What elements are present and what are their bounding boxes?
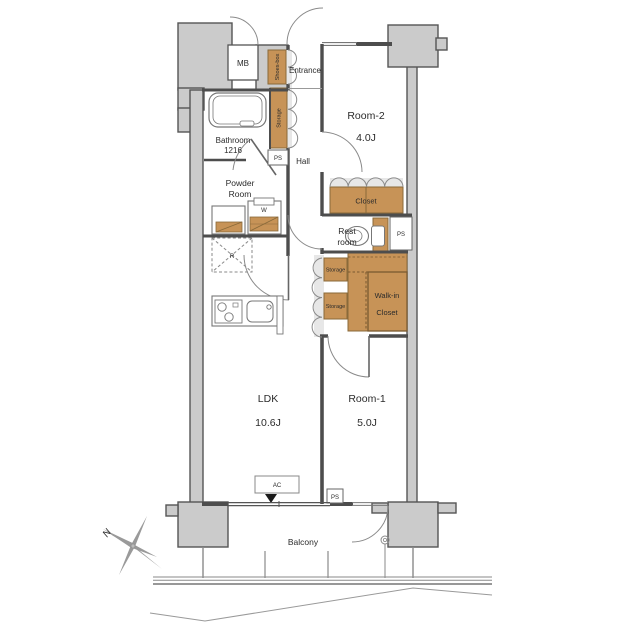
north-label: N (101, 526, 115, 539)
top-right-column (388, 25, 438, 67)
bathroom-size: 1216 (224, 146, 242, 155)
ps-label-room1: PS (331, 495, 339, 501)
rest-room-label-1: Rest (338, 226, 356, 236)
common-area-block (178, 23, 232, 90)
rest-room-label-2: room (337, 237, 356, 247)
room2-label: Room-2 (347, 110, 385, 122)
balcony-label: Balcony (288, 537, 319, 547)
entry-marker-triangle (265, 494, 277, 503)
powder-room-label-2: Room (229, 189, 252, 199)
entrance-door-arc (287, 8, 323, 44)
ldk-label: LDK (258, 393, 278, 405)
walk-in-closet-label-1: Walk-in (375, 291, 400, 300)
room1-size: 5.0J (357, 417, 377, 429)
vanity (212, 206, 245, 234)
common-area-step2 (178, 108, 191, 132)
ac-label: AC (273, 483, 282, 489)
washer-label: W (261, 208, 267, 214)
floor-plan-page: Room-2 4.0J Room-1 5.0J LDK 10.6J Entran… (0, 0, 617, 640)
storage-2-label: Storage (326, 304, 346, 310)
restroom-door-arc (288, 215, 322, 249)
ldk-door-arc (244, 255, 289, 300)
bathroom-label: Bathroom (216, 136, 251, 145)
top-right-column-notch (436, 38, 447, 50)
ldk-size: 10.6J (255, 417, 281, 429)
bottom-left-column (178, 502, 228, 547)
room1-door-arc (328, 336, 369, 377)
ps-label-hall: PS (274, 156, 282, 162)
right-wall-band (407, 55, 417, 504)
washer-pan (248, 198, 281, 234)
ldk-sliding-window (228, 501, 330, 507)
bottom-right-column (388, 502, 438, 547)
stove-burner-1 (218, 303, 226, 311)
kitchen-faucet (267, 305, 271, 309)
storage-1-label: Storage (326, 268, 346, 274)
bottom-left-column-wing (166, 505, 178, 516)
balcony-elements (150, 536, 492, 621)
bathtub (209, 93, 266, 127)
entrance-label: Entrance (289, 66, 322, 75)
closet-label: Closet (355, 197, 377, 206)
kitchen-counter (212, 296, 283, 334)
hall-storage-label: Storage (277, 108, 283, 128)
room1-label: Room-1 (348, 393, 386, 405)
mb-label: MB (237, 59, 249, 68)
bottom-right-column-wing-left (372, 503, 388, 513)
site-boundary-line (150, 588, 492, 621)
room2-size: 4.0J (356, 132, 376, 144)
ps-label-restroom: PS (397, 232, 405, 238)
powder-room-label-1: Powder (226, 178, 255, 188)
kitchen-sink (247, 301, 273, 322)
stove-burner-2 (225, 313, 233, 321)
left-wall-band (190, 90, 203, 504)
shoes-box-label: Shoes-box (275, 53, 281, 80)
walk-in-closet-label-2: Closet (376, 308, 398, 317)
compass (103, 516, 162, 575)
bottom-right-column-wing-right (438, 503, 456, 513)
floor-plan-drawing: Room-2 4.0J Room-1 5.0J LDK 10.6J Entran… (0, 0, 617, 640)
refrigerator-label: R (230, 254, 235, 260)
meter-box-door-arc (230, 17, 258, 45)
hall-label: Hall (296, 157, 310, 166)
